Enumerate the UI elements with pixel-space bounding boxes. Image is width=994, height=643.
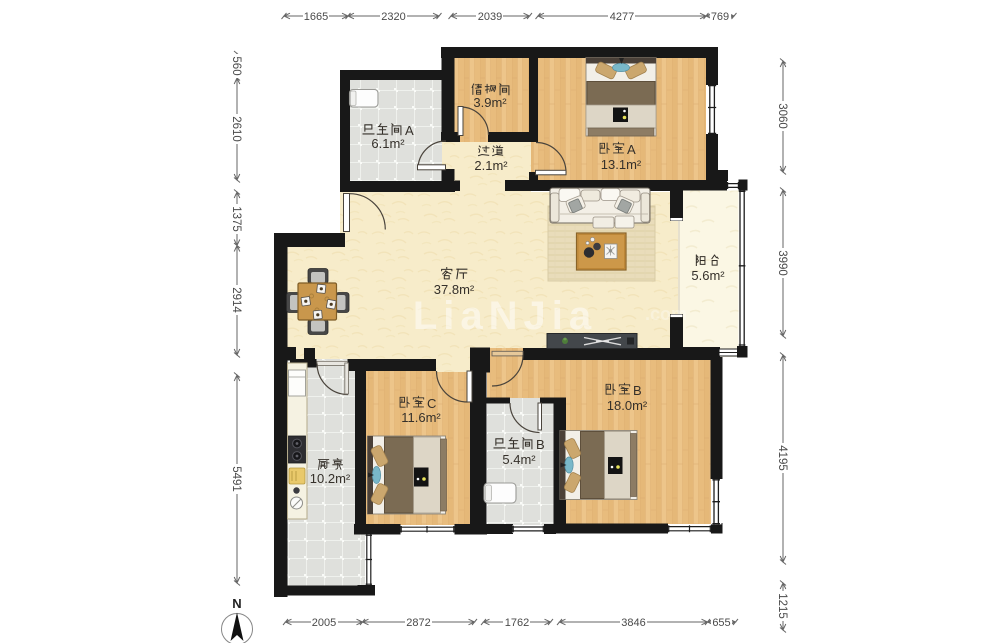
svg-text:5491: 5491 xyxy=(230,466,242,492)
svg-text:11.6m²: 11.6m² xyxy=(401,410,441,425)
svg-text:LiaNJia: LiaNJia xyxy=(413,294,597,338)
svg-text:3846: 3846 xyxy=(621,617,645,629)
svg-text:4277: 4277 xyxy=(610,11,634,23)
svg-text:18.0m²: 18.0m² xyxy=(607,398,648,413)
svg-text:2.1m²: 2.1m² xyxy=(474,158,508,173)
svg-text:10.2m²: 10.2m² xyxy=(310,471,351,486)
svg-text:4195: 4195 xyxy=(776,445,788,471)
svg-text:1665: 1665 xyxy=(304,11,328,23)
svg-text:560: 560 xyxy=(230,56,242,75)
svg-text:1215: 1215 xyxy=(776,593,788,619)
svg-text:2872: 2872 xyxy=(406,617,430,629)
svg-text:B: B xyxy=(536,437,545,452)
svg-text:2039: 2039 xyxy=(478,11,502,23)
svg-text:37.8m²: 37.8m² xyxy=(434,282,475,297)
svg-text:13.1m²: 13.1m² xyxy=(601,157,642,172)
svg-text:655: 655 xyxy=(712,617,730,629)
svg-text:2610: 2610 xyxy=(230,116,242,142)
svg-text:3990: 3990 xyxy=(776,250,788,276)
svg-text:3.9m²: 3.9m² xyxy=(473,95,507,110)
svg-text:769: 769 xyxy=(711,11,729,23)
svg-text:2005: 2005 xyxy=(312,617,336,629)
svg-text:2914: 2914 xyxy=(230,287,242,313)
svg-text:3060: 3060 xyxy=(776,103,788,129)
svg-text:N: N xyxy=(232,596,241,611)
svg-text:6.1m²: 6.1m² xyxy=(371,136,405,151)
svg-text:C: C xyxy=(427,396,436,411)
svg-text:1375: 1375 xyxy=(230,206,242,232)
svg-text:5.4m²: 5.4m² xyxy=(502,452,536,467)
svg-text:2320: 2320 xyxy=(381,11,405,23)
svg-text:A: A xyxy=(627,142,636,157)
svg-text:5.6m²: 5.6m² xyxy=(691,268,725,283)
svg-text:B: B xyxy=(633,383,642,398)
svg-text:1762: 1762 xyxy=(505,617,529,629)
svg-text:A: A xyxy=(405,123,414,138)
